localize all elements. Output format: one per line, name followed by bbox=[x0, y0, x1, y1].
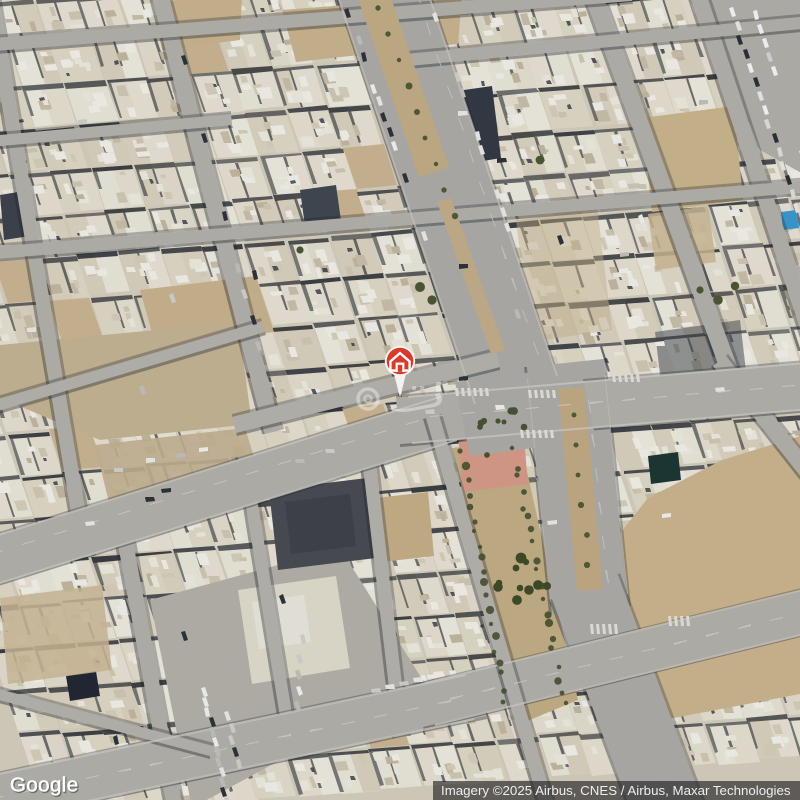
svg-text:Imagery ©2025 Airbus, CNES / A: Imagery ©2025 Airbus, CNES / Airbus, Max… bbox=[441, 783, 791, 798]
svg-text:Google: Google bbox=[10, 774, 79, 797]
